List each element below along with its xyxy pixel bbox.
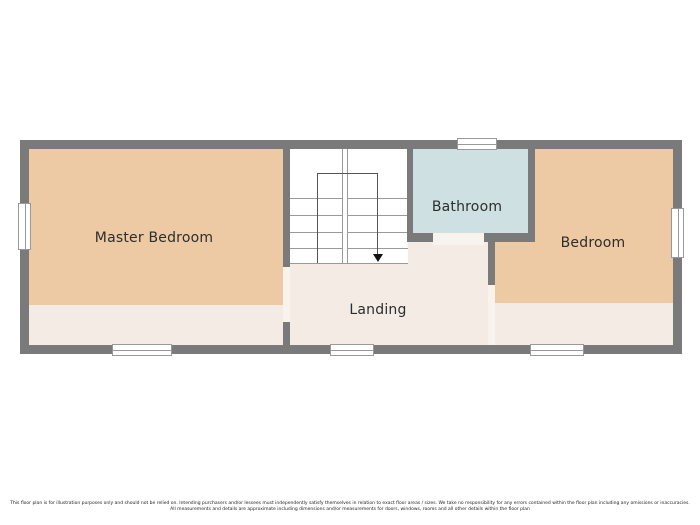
- window-master-bedroom-left: [18, 203, 31, 250]
- stair-tread-line: [290, 232, 408, 233]
- room-bedroom-floor: [535, 149, 673, 303]
- wall-segment: [484, 233, 535, 242]
- window-pane-line: [331, 350, 373, 351]
- window-landing-bottom: [330, 344, 374, 356]
- wall-segment: [283, 322, 290, 345]
- window-pane-line: [25, 204, 26, 249]
- window-pane-line: [678, 209, 679, 257]
- wall-segment: [407, 233, 433, 242]
- master-bedroom-door-opening: [283, 267, 290, 322]
- bedroom-door-opening: [488, 285, 495, 345]
- stair-flight-divider: [342, 149, 348, 263]
- window-master-bedroom-bottom: [112, 344, 172, 356]
- room-bedroom-floor-extension: [495, 242, 535, 303]
- disclaimer-line-2: All measurements and details are approxi…: [0, 507, 700, 513]
- floor-plan: Master Bedroom Bathroom Bedroom Landing: [20, 140, 682, 354]
- wall-segment: [488, 242, 495, 285]
- room-bathroom-floor: [413, 149, 528, 233]
- window-pane-line: [458, 144, 496, 145]
- stair-tread-line: [290, 215, 408, 216]
- staircase: [290, 149, 408, 264]
- room-master-bedroom-floor: [29, 149, 283, 305]
- stair-walk-line: [317, 173, 318, 263]
- room-label-landing: Landing: [349, 302, 406, 318]
- window-bathroom-top: [457, 138, 497, 150]
- wall-segment: [528, 149, 535, 233]
- wall-segment: [407, 149, 413, 242]
- window-pane-line: [531, 350, 583, 351]
- room-label-bedroom: Bedroom: [561, 235, 626, 251]
- stairs-down-arrow-icon: [373, 254, 383, 262]
- stair-tread-line: [290, 248, 408, 249]
- window-pane-line: [113, 350, 171, 351]
- wall-segment: [283, 149, 290, 267]
- disclaimer: This floor plan is for illustration purp…: [0, 501, 700, 513]
- floor-plan-page: Master Bedroom Bathroom Bedroom Landing …: [0, 0, 700, 525]
- window-bedroom-bottom: [530, 344, 584, 356]
- stair-walk-line: [377, 173, 378, 254]
- stair-tread-line: [290, 198, 408, 199]
- stair-walk-line: [317, 173, 377, 174]
- room-label-bathroom: Bathroom: [432, 199, 502, 215]
- window-bedroom-right: [671, 208, 684, 258]
- room-label-master-bedroom: Master Bedroom: [95, 230, 213, 246]
- bathroom-door-opening: [433, 233, 484, 245]
